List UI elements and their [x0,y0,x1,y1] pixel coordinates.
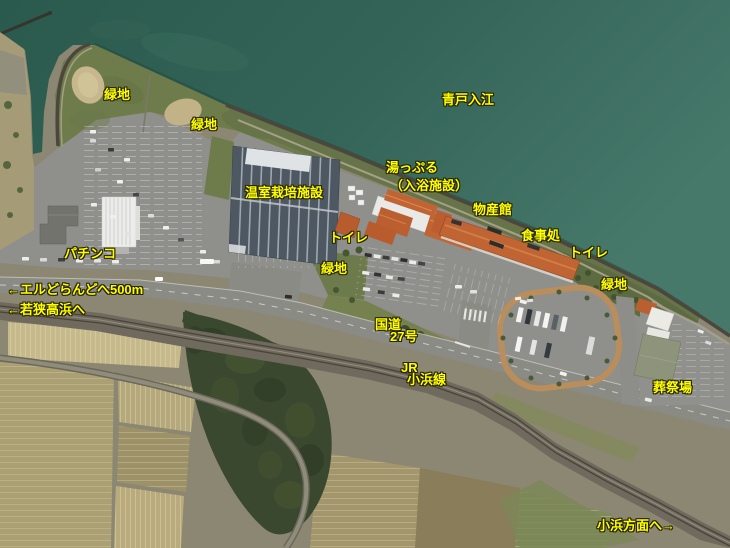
aerial-imagery [0,0,730,548]
pachinko-building [102,197,140,254]
satellite-map: 緑地緑地青戸入江湯っぷる（入浴施設）温室栽培施設物産館食事処トイレトイレパチンコ… [0,0,730,548]
greenhouse-building [229,146,340,266]
